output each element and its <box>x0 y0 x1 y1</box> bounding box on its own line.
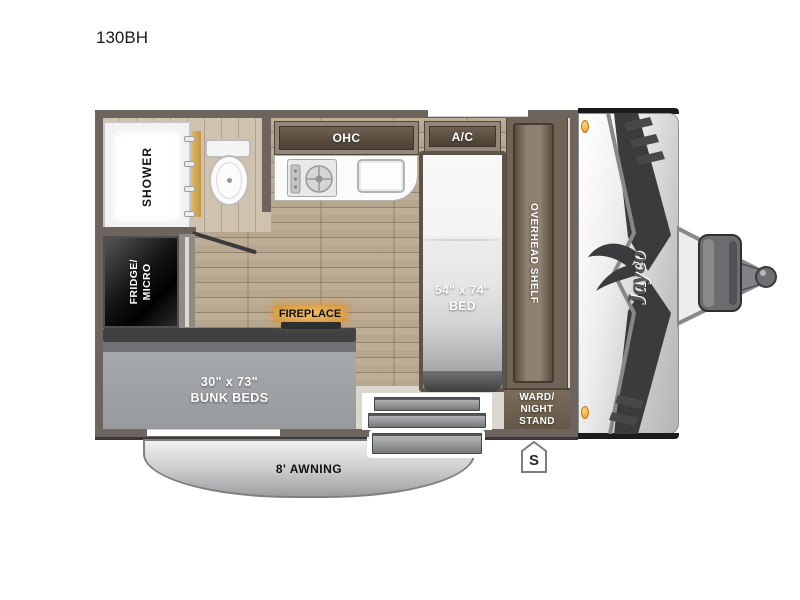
floorplan-page: 130BH SHOWER FRIDGE/ MICRO 30" x 73" BUN… <box>0 0 800 600</box>
marker-light-bottom <box>581 406 589 419</box>
tongue-hitch <box>677 225 777 327</box>
entry-step-1 <box>374 397 480 411</box>
page-title: 130BH <box>96 28 148 48</box>
brand-logo-text: Jayco <box>625 251 651 306</box>
entry-step-2 <box>368 413 486 428</box>
window-front-top <box>428 110 528 117</box>
brand-logo: Jayco <box>620 218 656 338</box>
entry-step-3 <box>372 433 482 454</box>
marker-light-top <box>581 120 589 133</box>
awning-label: 8' AWNING <box>276 462 342 476</box>
exterior-walls <box>95 110 578 437</box>
spare-badge: S <box>521 441 547 473</box>
window-bunk-bottom <box>147 429 280 436</box>
spare-badge-letter: S <box>529 452 539 469</box>
